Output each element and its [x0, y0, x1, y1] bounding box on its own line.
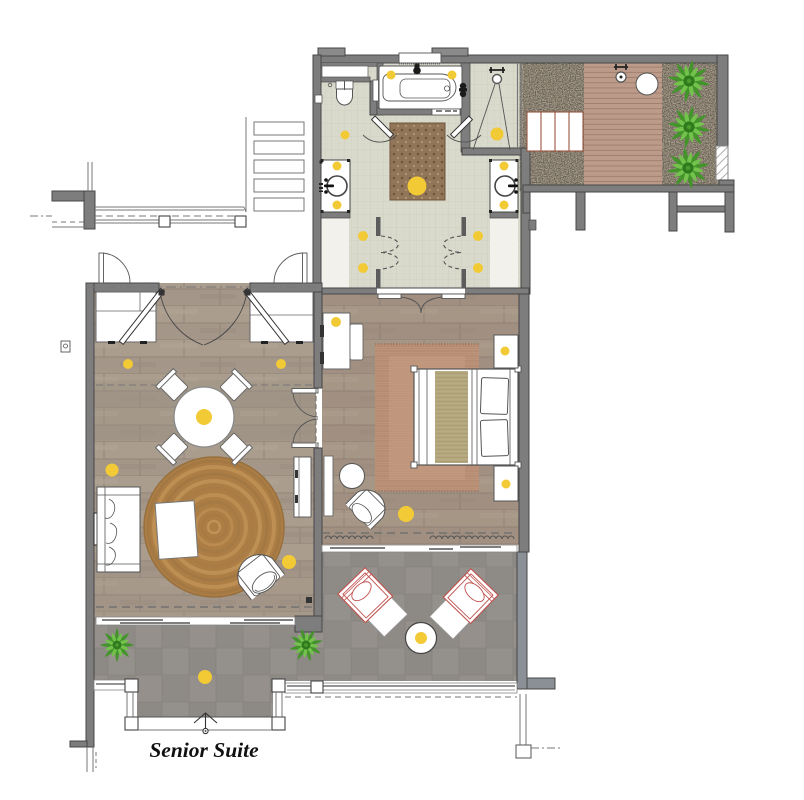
svg-text:Senior Suite: Senior Suite: [149, 738, 259, 762]
